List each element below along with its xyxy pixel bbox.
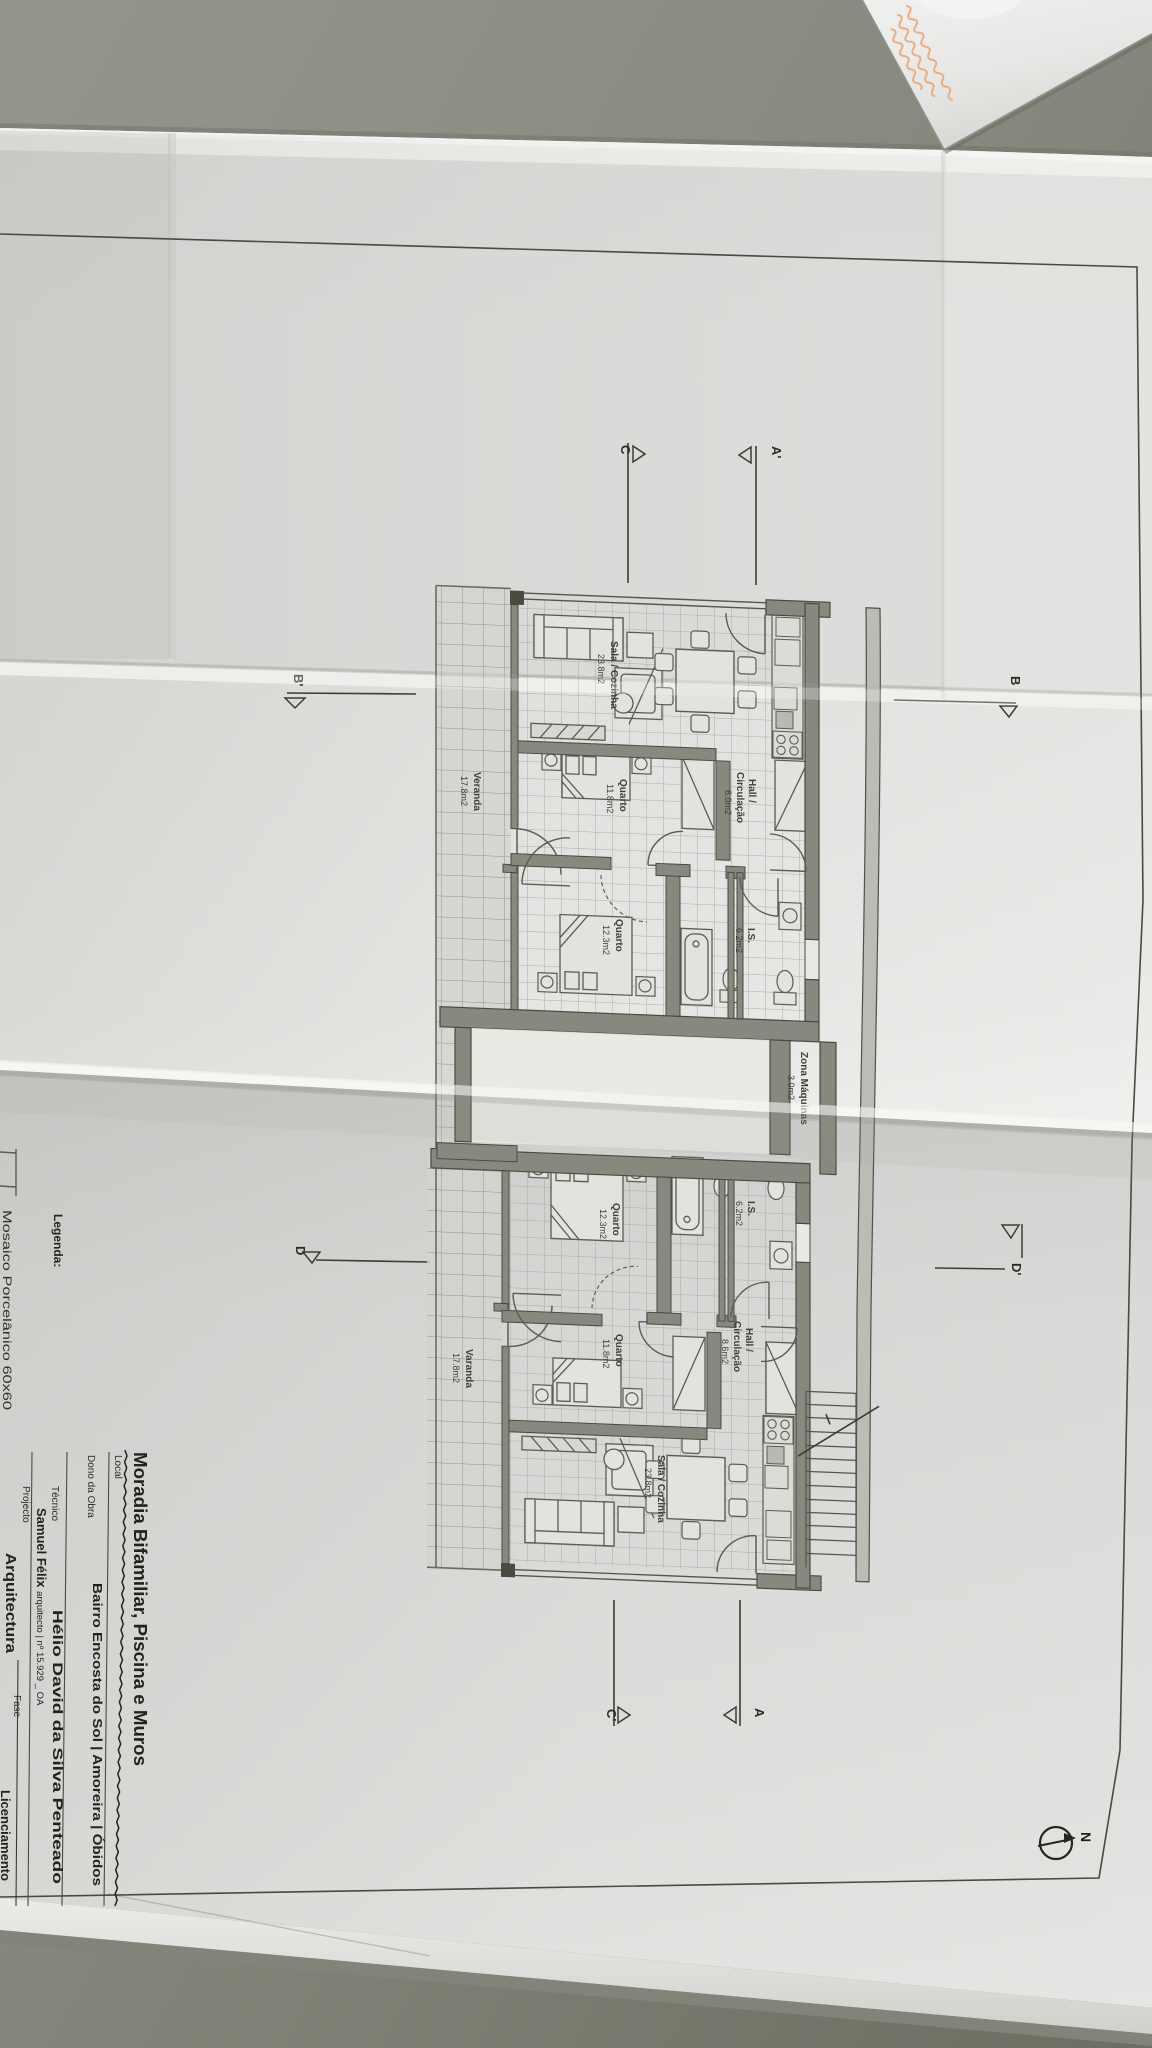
svg-text:B: B <box>1008 676 1023 685</box>
svg-text:Quarto: Quarto <box>613 919 624 952</box>
svg-text:Fase: Fase <box>11 1695 22 1718</box>
svg-text:3.0m2: 3.0m2 <box>786 1075 796 1100</box>
svg-text:11.8m2: 11.8m2 <box>605 784 615 813</box>
svg-text:Sala / Cozinha: Sala / Cozinha <box>608 641 619 709</box>
svg-text:Sala / Cozinha: Sala / Cozinha <box>655 1455 666 1523</box>
svg-text:D': D' <box>1009 1263 1024 1275</box>
svg-text:6.0m2: 6.0m2 <box>723 790 733 815</box>
svg-text:N: N <box>1078 1832 1094 1842</box>
svg-text:Moradia Bifamiliar, Piscina e: Moradia Bifamiliar, Piscina e Muros <box>130 1452 150 1766</box>
svg-text:Hall /: Hall / <box>746 779 757 803</box>
svg-text:D: D <box>293 1246 308 1255</box>
svg-text:Hall /: Hall / <box>743 1328 754 1352</box>
svg-text:I.S.: I.S. <box>745 928 756 943</box>
svg-text:12.3m2: 12.3m2 <box>598 1209 608 1239</box>
svg-text:Circulação: Circulação <box>731 1321 742 1372</box>
svg-text:Licenciamento: Licenciamento <box>0 1790 13 1881</box>
svg-text:Hélio David da Silva Penteado: Hélio David da Silva Penteado <box>50 1610 65 1884</box>
svg-text:C': C' <box>604 1709 619 1721</box>
svg-text:Quarto: Quarto <box>610 1203 621 1236</box>
svg-text:23.8m2: 23.8m2 <box>643 1468 653 1498</box>
svg-text:Projecto: Projecto <box>20 1486 31 1523</box>
svg-text:Bairro Encosta do Sol | Amorei: Bairro Encosta do Sol | Amoreira | Óbido… <box>90 1583 105 1886</box>
svg-text:Técnico: Técnico <box>49 1486 60 1521</box>
svg-text:Varanda: Varanda <box>463 1349 474 1388</box>
svg-text:Legenda:: Legenda: <box>51 1214 65 1267</box>
svg-text:11.8m2: 11.8m2 <box>601 1339 611 1368</box>
svg-text:6.2m2: 6.2m2 <box>734 928 744 953</box>
svg-text:A: A <box>752 1708 767 1718</box>
svg-text:Arquitectura: Arquitectura <box>2 1553 19 1654</box>
svg-text:8.6m2: 8.6m2 <box>720 1339 730 1364</box>
svg-text:Quarto: Quarto <box>617 779 628 812</box>
svg-text:12.3m2: 12.3m2 <box>601 925 611 955</box>
svg-text:6.2m2: 6.2m2 <box>734 1201 744 1226</box>
svg-text:Dono da Obra: Dono da Obra <box>85 1455 96 1518</box>
svg-text:17.8m2: 17.8m2 <box>451 1353 461 1383</box>
svg-text:C: C <box>618 445 633 455</box>
svg-text:A': A' <box>769 446 784 458</box>
svg-text:Circulação: Circulação <box>734 772 745 823</box>
svg-text:Veranda: Veranda <box>471 772 482 811</box>
svg-text:Quarto: Quarto <box>613 1334 624 1367</box>
svg-text:Mosaico Porcelânico 60x60: Mosaico Porcelânico 60x60 <box>0 1210 14 1410</box>
svg-text:17.8m2: 17.8m2 <box>459 776 469 806</box>
svg-text:Local: Local <box>112 1455 123 1479</box>
svg-text:I.S.: I.S. <box>745 1201 756 1216</box>
